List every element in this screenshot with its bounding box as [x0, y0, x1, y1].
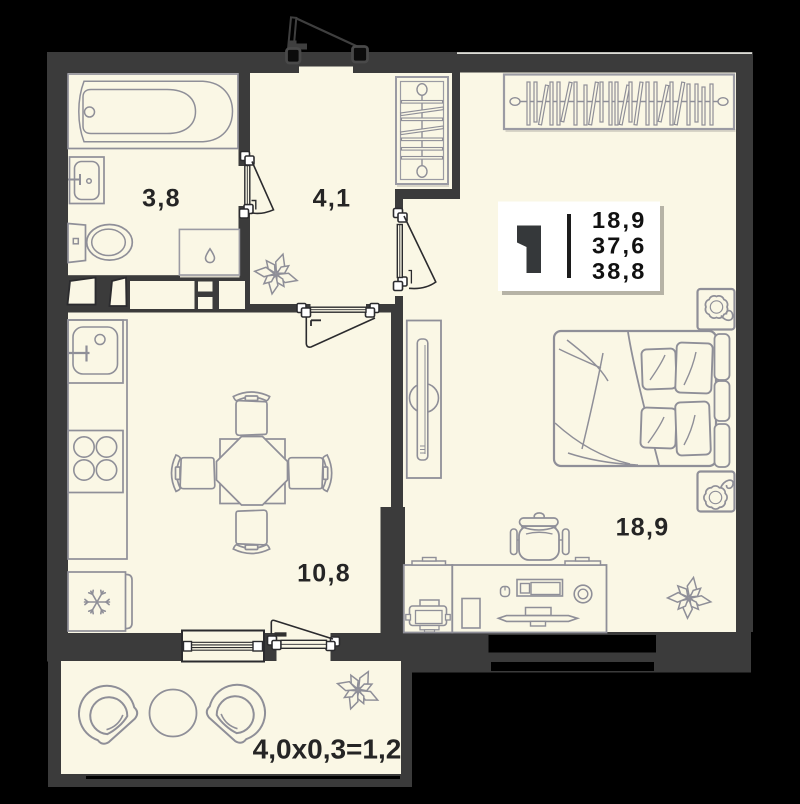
svg-text:18,9: 18,9: [592, 207, 647, 233]
svg-text:37,6: 37,6: [592, 233, 647, 259]
svg-text:10,8: 10,8: [297, 560, 351, 588]
svg-text:4,1: 4,1: [313, 185, 352, 213]
svg-text:4,0х0,3=1,2: 4,0х0,3=1,2: [253, 734, 402, 765]
svg-text:3,8: 3,8: [142, 185, 181, 213]
svg-text:18,9: 18,9: [616, 514, 670, 542]
svg-text:38,8: 38,8: [592, 258, 647, 284]
